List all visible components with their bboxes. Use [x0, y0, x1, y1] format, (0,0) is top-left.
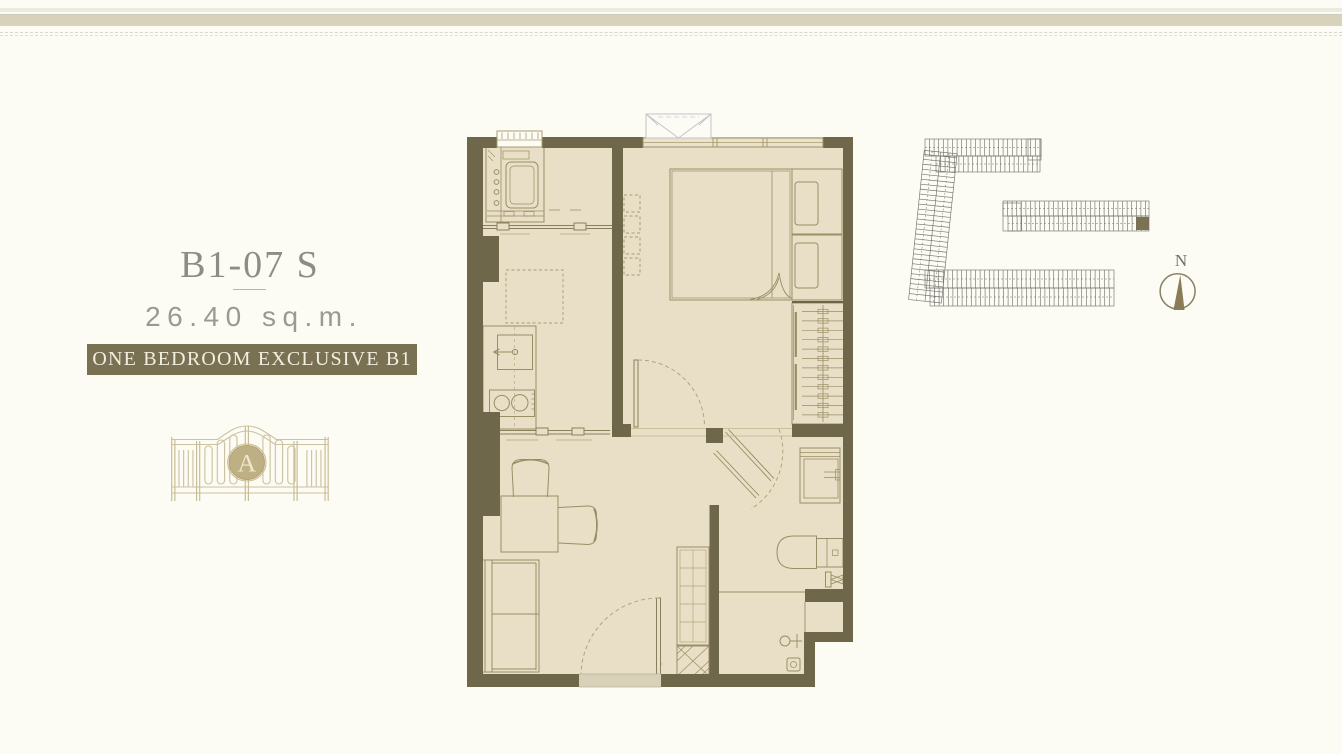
svg-text:A: A — [237, 449, 256, 477]
